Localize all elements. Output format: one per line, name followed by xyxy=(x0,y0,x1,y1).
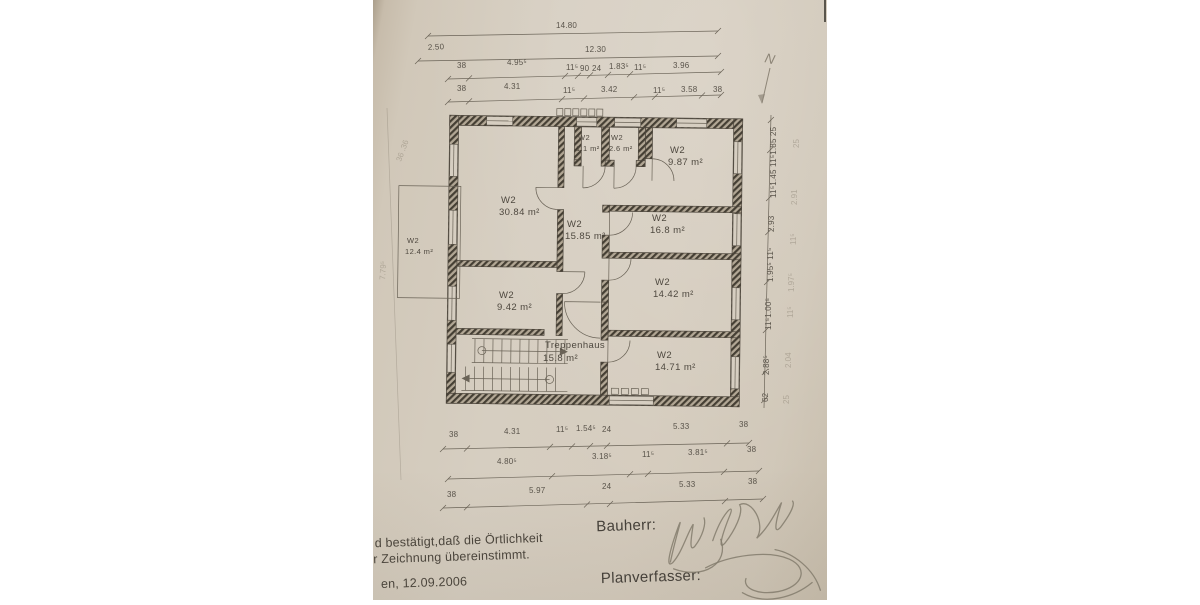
dimension-label: 4.31 xyxy=(504,427,521,436)
dimension-label: 2.88⁵ xyxy=(762,355,771,375)
planverfasser-label: Planverfasser: xyxy=(601,567,702,587)
north-arrow: N xyxy=(758,50,777,104)
wall-below-987 xyxy=(610,205,742,213)
dimension-label: 7.79⁵ xyxy=(378,261,388,280)
dimension-label: 24 xyxy=(592,64,602,73)
date-line: en, 12.09.2006 xyxy=(381,574,468,591)
wall-corridor-left-b xyxy=(557,210,564,272)
dimension-label: 62 xyxy=(761,392,770,402)
dimension-label: 4.31 xyxy=(504,82,521,91)
wall-roomsleft-d xyxy=(601,302,608,340)
dimension-label: 24 xyxy=(602,425,612,434)
floorplan-drawing: W230.84 m²W21.1 m²W22.6 m²W29.87 m²W215.… xyxy=(373,0,827,600)
dimension-label: 5.97 xyxy=(529,486,546,495)
dimension-line xyxy=(448,95,721,102)
room-area: 9.42 m² xyxy=(497,302,532,313)
page: { "north": { "label": "N" }, "footer": {… xyxy=(0,0,1200,600)
room-label: W2 xyxy=(407,236,419,245)
dimension-line xyxy=(448,471,759,479)
room-label: W2 xyxy=(611,133,623,142)
dimension-label: 11⁵ xyxy=(566,63,578,72)
dimension-label: 1.97⁵ xyxy=(787,273,796,292)
dimension-label: 11⁵ xyxy=(786,306,795,318)
wall-stairhall-top xyxy=(456,328,544,335)
dimension-label: 3.96 xyxy=(673,61,690,70)
room-label: W2 xyxy=(657,350,672,361)
dimension-label: 2.91 xyxy=(790,189,799,205)
certification-line-2: r Zeichnung übereinstimmt. xyxy=(373,547,530,566)
room-label: Treppenhaus xyxy=(545,340,605,351)
pencil-line xyxy=(387,108,401,480)
dimension-label: 1.54⁵ xyxy=(576,424,596,433)
dimension-label: 5.33 xyxy=(673,422,690,431)
dimension-label: 12.30 xyxy=(585,45,606,54)
north-label: N xyxy=(763,50,776,67)
dimension-label: 38 xyxy=(748,477,758,486)
wall-roomsleft-a xyxy=(603,205,610,212)
wall-stub-c xyxy=(636,161,645,167)
room-area: 15.8 m² xyxy=(543,353,578,364)
room-area: 14.71 m² xyxy=(655,362,696,373)
room-label: W2 xyxy=(652,213,667,224)
room-label: W2 xyxy=(499,290,514,301)
wall-corridor-left-a xyxy=(558,127,565,188)
dimension-label: 14.80 xyxy=(556,21,577,30)
room-label: W2 xyxy=(655,277,670,288)
dimension-label: 11⁵ xyxy=(634,63,646,72)
wall-1442-1471 xyxy=(608,330,740,338)
dimension-lines-group xyxy=(415,28,774,511)
dimension-label: 11⁵1.00⁵ xyxy=(764,298,773,330)
bauherr-label: Bauherr: xyxy=(596,516,656,535)
wall-bottom xyxy=(446,393,739,407)
dimension-label: 38 xyxy=(747,445,757,454)
wall-room-divider-left xyxy=(457,260,557,267)
room-label: W2 xyxy=(567,219,582,230)
dimension-label: 25 xyxy=(792,139,801,148)
room-label: W2 xyxy=(670,145,685,156)
room-area: 14.42 m² xyxy=(653,289,694,300)
dimension-tick xyxy=(607,501,613,507)
footer-group: d bestätigt,daß die Örtlichkeit r Zeichn… xyxy=(373,500,821,600)
dimension-label: 36 .36 xyxy=(394,138,410,162)
room-label: W2 xyxy=(501,195,516,206)
room-label: W2 xyxy=(578,133,590,142)
dimension-label: 38 xyxy=(449,430,459,439)
dimension-tick xyxy=(722,498,728,504)
dimension-label: 11⁵ xyxy=(642,450,654,459)
dimension-label: 11⁵ xyxy=(563,86,575,95)
dimension-label: 38 xyxy=(457,61,467,70)
dimension-label: 4.80⁵ xyxy=(497,457,517,466)
dimension-label: 2.50 xyxy=(428,42,445,52)
wall-stub-a xyxy=(574,160,581,166)
wall-roomsleft-e xyxy=(600,362,607,395)
dimension-label: 3.58 xyxy=(681,85,698,94)
dimension-label: 38 xyxy=(739,420,749,429)
dimension-label: 24 xyxy=(602,482,612,491)
dimension-label: 38 xyxy=(457,84,467,93)
dimension-label: 3.18⁵ xyxy=(592,452,612,461)
room-area: 2.6 m² xyxy=(609,144,633,153)
dimension-label: 1.83⁵ xyxy=(609,62,629,71)
dimension-label: 25 xyxy=(782,395,791,404)
dimension-label: 38 xyxy=(713,85,723,94)
room-area: 1.1 m² xyxy=(576,144,600,153)
north-arrow-head xyxy=(758,94,765,104)
dimension-label: 90 xyxy=(580,64,590,73)
room-area: 9.87 m² xyxy=(668,157,703,168)
bauherr-signature xyxy=(667,501,795,573)
dimension-label: 38 xyxy=(447,490,457,499)
dimension-label: 3.81⁵ xyxy=(688,448,708,457)
dimension-label: 2.04 xyxy=(784,352,793,368)
wall-stub-b xyxy=(605,160,614,166)
room-area: 16.8 m² xyxy=(650,225,685,236)
dimension-label: 11⁵ xyxy=(789,233,798,245)
scanned-floorplan-photo: W230.84 m²W21.1 m²W22.6 m²W29.87 m²W215.… xyxy=(373,0,827,600)
planverfasser-signature xyxy=(705,548,820,600)
wall-168-1442 xyxy=(609,252,741,260)
room-area: 30.84 m² xyxy=(499,207,540,218)
dimension-label: 11⁵ xyxy=(556,425,568,434)
dimension-line xyxy=(448,72,721,79)
wall-vestibule-right xyxy=(645,128,652,159)
room-area: 15.85 m² xyxy=(565,231,606,242)
dimension-line xyxy=(428,31,718,36)
wall-corridor-left-c xyxy=(556,294,563,336)
dimension-tick xyxy=(584,502,590,508)
room-area: 12.4 m² xyxy=(405,247,433,256)
wall-roomsleft-c xyxy=(601,280,608,302)
dimension-line xyxy=(443,499,763,508)
dimension-label: 5.33 xyxy=(679,480,696,489)
dimension-label: 3.42 xyxy=(601,85,618,94)
dimension-label: 11⁵ xyxy=(653,86,665,95)
